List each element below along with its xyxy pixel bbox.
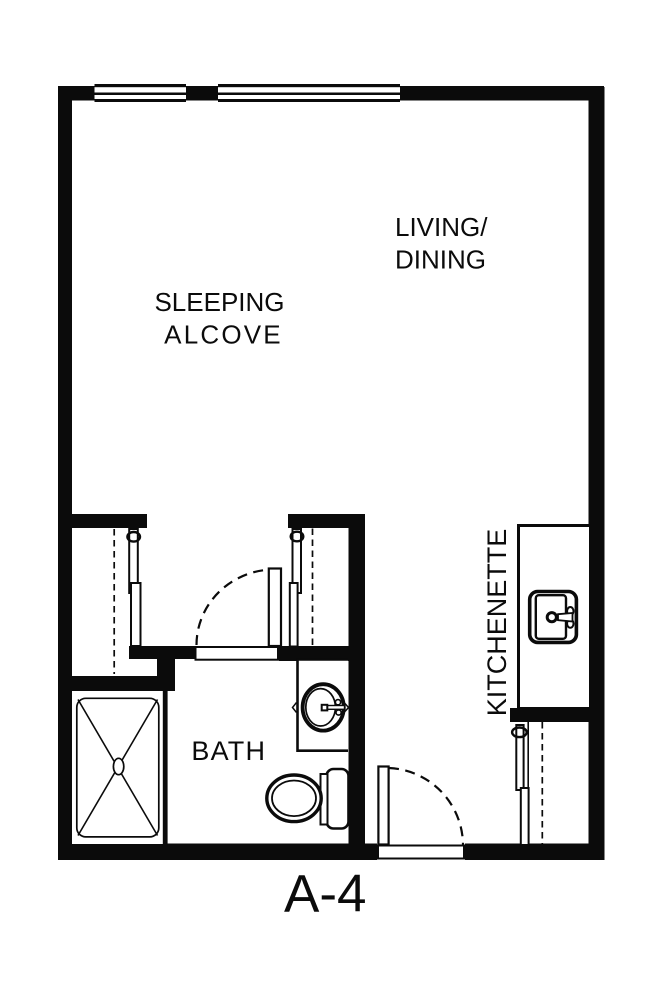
svg-text:LIVING/: LIVING/ xyxy=(395,212,488,242)
svg-text:KITCHENETTE: KITCHENETTE xyxy=(482,529,512,717)
svg-text:BATH: BATH xyxy=(191,736,266,766)
svg-text:DINING: DINING xyxy=(395,245,486,275)
svg-text:SLEEPING: SLEEPING xyxy=(154,287,284,317)
svg-text:ALCOVE: ALCOVE xyxy=(164,319,283,349)
svg-text:A-4: A-4 xyxy=(284,865,366,924)
